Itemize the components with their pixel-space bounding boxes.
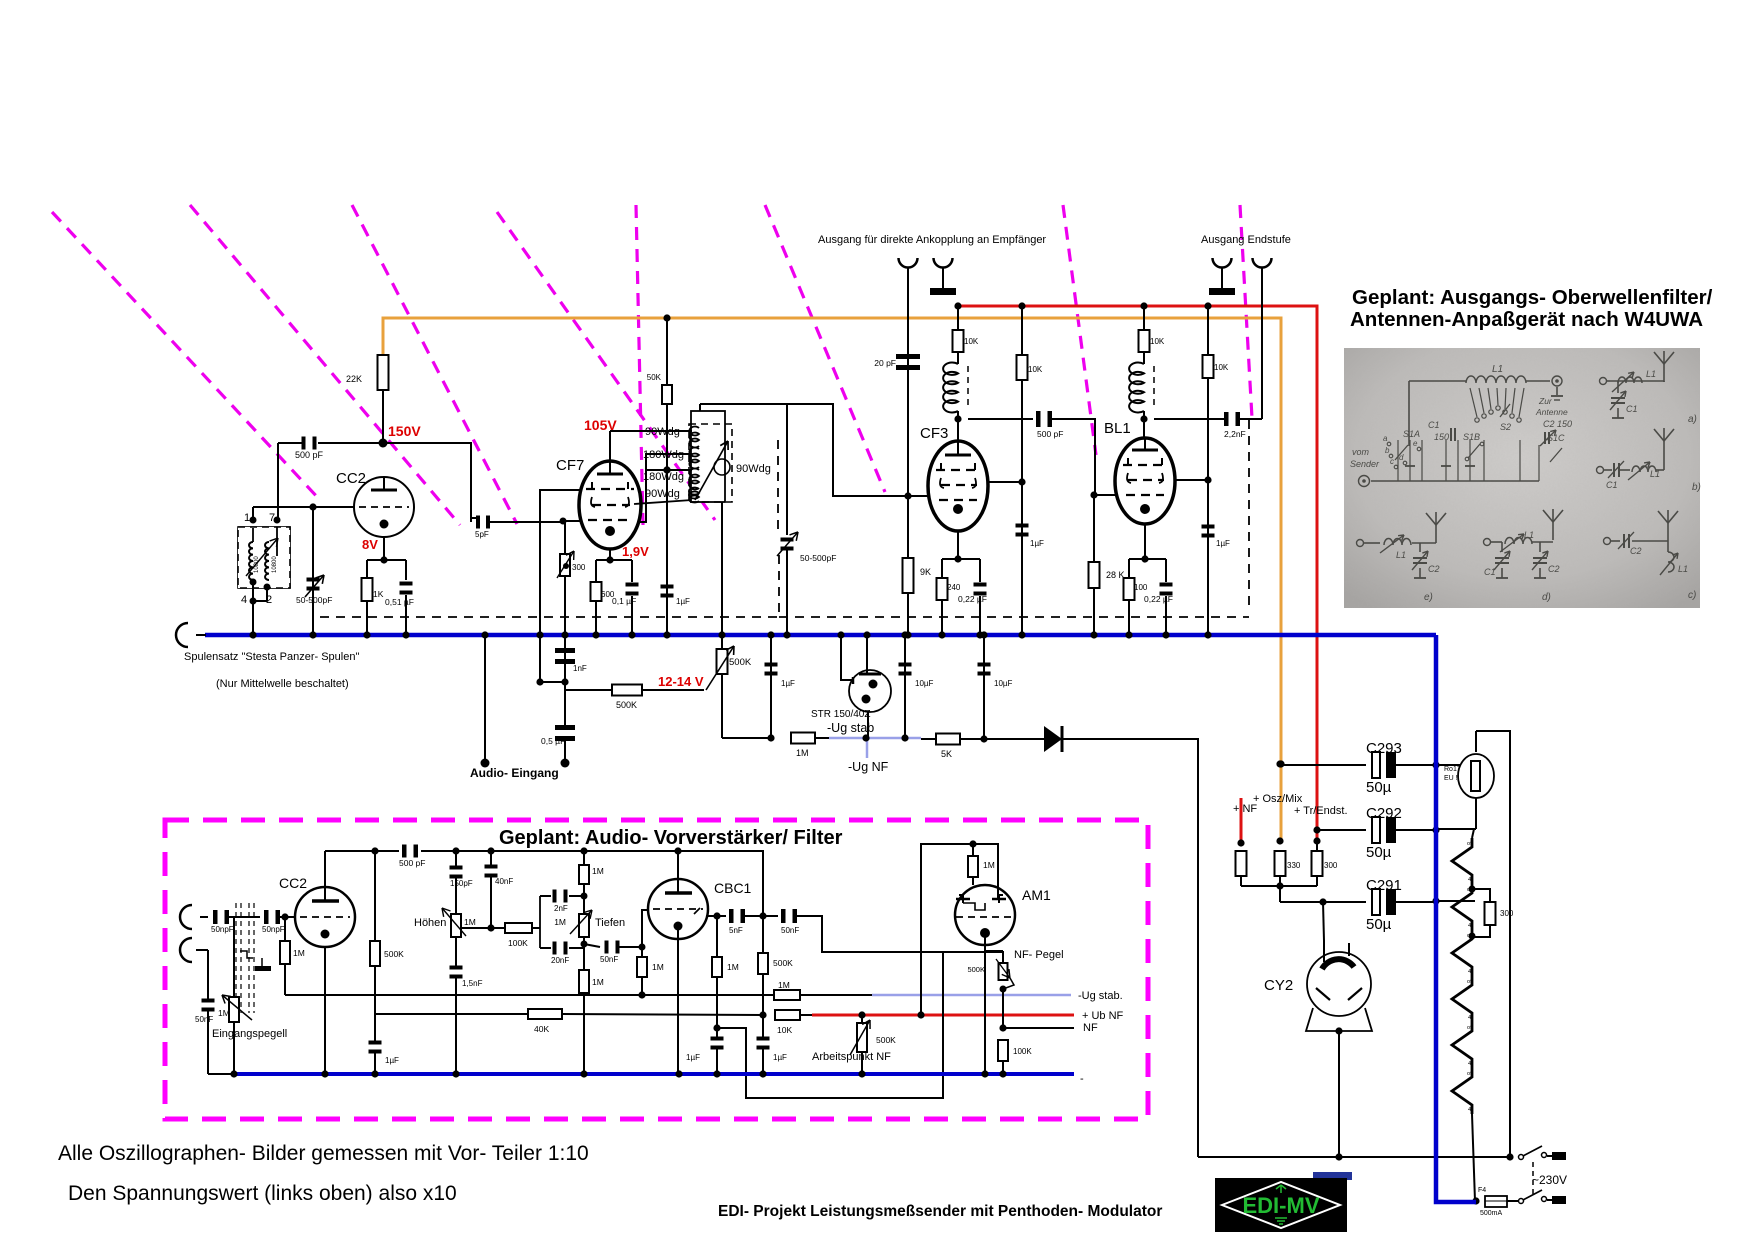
- svg-text:1µF: 1µF: [385, 1056, 399, 1065]
- svg-text:1M: 1M: [592, 977, 604, 987]
- svg-text:C2 150: C2 150: [1543, 419, 1572, 429]
- svg-text:Ausgang für direkte Ankopplung: Ausgang für direkte Ankopplung an Empfän…: [818, 234, 1046, 246]
- svg-text:500mA: 500mA: [1480, 1210, 1503, 1217]
- svg-text:EDI- Projekt Leistungsmeßsende: EDI- Projekt Leistungsmeßsender mit Pent…: [718, 1203, 1162, 1220]
- svg-text:50npF: 50npF: [211, 925, 234, 934]
- svg-text:e: e: [1413, 439, 1418, 448]
- svg-text:100K: 100K: [1013, 1047, 1032, 1056]
- svg-text:CC2: CC2: [279, 875, 307, 891]
- svg-text:4: 4: [1468, 877, 1471, 883]
- svg-text:C291: C291: [1366, 877, 1402, 894]
- svg-text:a: a: [1383, 434, 1388, 443]
- svg-text:b: b: [1385, 446, 1390, 455]
- svg-text:10K: 10K: [1150, 337, 1165, 346]
- svg-text:1K: 1K: [373, 589, 384, 599]
- svg-text:-Ug NF: -Ug NF: [848, 760, 889, 774]
- svg-text:5pF: 5pF: [475, 530, 489, 539]
- svg-text:Spulensatz "Stesta Panzer- Spu: Spulensatz "Stesta Panzer- Spulen": [184, 651, 359, 663]
- svg-text:0,22 µF: 0,22 µF: [958, 594, 987, 604]
- svg-text:of: of: [1467, 1071, 1472, 1077]
- svg-text:50-500pF: 50-500pF: [800, 553, 836, 563]
- svg-text:180Wdg: 180Wdg: [643, 471, 684, 483]
- svg-text:L1: L1: [1678, 564, 1688, 574]
- svg-text:C1: C1: [1626, 404, 1638, 414]
- svg-text:C1: C1: [1428, 420, 1440, 430]
- svg-text:90Wdg: 90Wdg: [736, 463, 771, 475]
- svg-text:1µF: 1µF: [686, 1053, 700, 1062]
- svg-text:Geplant: Ausgangs- Oberwellenf: Geplant: Ausgangs- Oberwellenfilter/: [1352, 286, 1713, 309]
- svg-text:500 pF: 500 pF: [295, 450, 324, 460]
- svg-text:NF: NF: [1083, 1022, 1098, 1034]
- svg-text:Eingangspegell: Eingangspegell: [212, 1028, 287, 1040]
- svg-text:4: 4: [1468, 1107, 1471, 1113]
- svg-text:a): a): [1688, 414, 1697, 425]
- svg-text:500K: 500K: [729, 657, 752, 668]
- svg-text:C2: C2: [1428, 564, 1440, 574]
- svg-text:10800: 10800: [272, 556, 278, 573]
- svg-text:1M: 1M: [796, 748, 809, 758]
- svg-text:CBC1: CBC1: [714, 880, 752, 896]
- svg-text:1M: 1M: [727, 962, 739, 972]
- svg-text:C1: C1: [1606, 480, 1618, 490]
- svg-text:50µ: 50µ: [1366, 779, 1392, 796]
- svg-text:150: 150: [1434, 432, 1449, 442]
- svg-text:1M: 1M: [592, 866, 604, 876]
- svg-text:1µF: 1µF: [773, 1053, 787, 1062]
- svg-text:C293: C293: [1366, 740, 1402, 757]
- svg-text:500 pF: 500 pF: [399, 858, 425, 868]
- svg-text:Ausgang Endstufe: Ausgang Endstufe: [1201, 234, 1291, 246]
- svg-text:Geplant: Audio- Vorverstärker/: Geplant: Audio- Vorverstärker/ Filter: [499, 827, 843, 849]
- svg-text:50K: 50K: [647, 373, 662, 382]
- svg-text:C2: C2: [1630, 546, 1642, 556]
- svg-text:S2: S2: [1500, 422, 1511, 432]
- svg-text:F4: F4: [1478, 1187, 1486, 1194]
- svg-text:of: of: [1467, 841, 1472, 847]
- svg-text:L1: L1: [1524, 530, 1534, 540]
- svg-text:+ Tr/Endst.: + Tr/Endst.: [1294, 805, 1348, 817]
- svg-text:4: 4: [1468, 923, 1471, 929]
- svg-text:2nF: 2nF: [554, 904, 568, 913]
- svg-text:L1: L1: [1646, 369, 1656, 379]
- svg-text:S1C: S1C: [1547, 433, 1565, 443]
- svg-text:10K: 10K: [1214, 363, 1229, 372]
- svg-text:e): e): [1424, 592, 1433, 603]
- svg-text:0,5 µF: 0,5 µF: [541, 736, 565, 746]
- svg-text:330: 330: [1287, 861, 1301, 870]
- svg-text:1,9V: 1,9V: [622, 544, 649, 559]
- svg-text:C1: C1: [1484, 567, 1496, 577]
- svg-text:4: 4: [1468, 1061, 1471, 1067]
- svg-text:NF- Pegel: NF- Pegel: [1014, 949, 1064, 961]
- svg-text:40nF: 40nF: [495, 877, 513, 886]
- svg-text:10K: 10K: [1028, 365, 1043, 374]
- svg-text:d): d): [1542, 592, 1551, 603]
- svg-text:4: 4: [241, 594, 247, 606]
- svg-text:Audio- Eingang: Audio- Eingang: [470, 766, 559, 780]
- svg-text:BL1: BL1: [1104, 420, 1131, 437]
- svg-text:500K: 500K: [773, 958, 793, 968]
- svg-text:10K: 10K: [964, 337, 979, 346]
- svg-text:1M: 1M: [983, 860, 995, 870]
- svg-text:50µ: 50µ: [1366, 844, 1392, 861]
- svg-text:C292: C292: [1366, 805, 1402, 822]
- svg-text:10K: 10K: [777, 1025, 792, 1035]
- svg-text:2,2nF: 2,2nF: [1224, 429, 1246, 439]
- svg-text:+ Osz/Mix: + Osz/Mix: [1253, 793, 1303, 805]
- svg-text:Ro17: Ro17: [1444, 766, 1461, 773]
- svg-text:5K: 5K: [941, 749, 952, 759]
- svg-text:50nF: 50nF: [195, 1015, 213, 1024]
- svg-text:1,5nF: 1,5nF: [462, 979, 483, 988]
- svg-text:90Wdg: 90Wdg: [645, 488, 680, 500]
- svg-text:90Wdg: 90Wdg: [645, 426, 680, 438]
- svg-text:9K: 9K: [920, 567, 931, 577]
- svg-text:1M: 1M: [293, 948, 305, 958]
- svg-text:240: 240: [947, 583, 961, 592]
- svg-text:-Ug stab.: -Ug stab.: [1078, 990, 1123, 1002]
- svg-text:500K: 500K: [967, 965, 985, 974]
- svg-text:Antennen-Anpaßgerät nach W4UWA: Antennen-Anpaßgerät nach W4UWA: [1350, 308, 1703, 331]
- svg-text:500K: 500K: [384, 949, 404, 959]
- svg-text:c: c: [1390, 457, 1394, 466]
- svg-text:500K: 500K: [616, 700, 637, 710]
- svg-text:4: 4: [1468, 1015, 1471, 1021]
- svg-text:of: of: [1467, 1025, 1472, 1031]
- svg-text:1µF: 1µF: [676, 597, 690, 606]
- svg-text:-: -: [1080, 1073, 1084, 1085]
- svg-text:EDI-MV: EDI-MV: [1243, 1193, 1320, 1218]
- svg-text:CF7: CF7: [556, 457, 584, 474]
- svg-text:50µ: 50µ: [1366, 916, 1392, 933]
- svg-text:50npF: 50npF: [262, 925, 285, 934]
- svg-text:1: 1: [244, 512, 250, 524]
- svg-text:150V: 150V: [388, 423, 421, 439]
- svg-text:50nF: 50nF: [781, 926, 799, 935]
- svg-text:S1B: S1B: [1463, 432, 1480, 442]
- svg-text:(Nur Mittelwelle beschaltet): (Nur Mittelwelle beschaltet): [216, 678, 349, 690]
- svg-text:1M: 1M: [652, 962, 664, 972]
- svg-text:AM1: AM1: [1022, 887, 1051, 903]
- svg-text:L1: L1: [1396, 550, 1406, 560]
- svg-text:50nF: 50nF: [600, 955, 618, 964]
- svg-text:180Wdg: 180Wdg: [643, 449, 684, 461]
- svg-text:Arbeitspunkt NF: Arbeitspunkt NF: [812, 1051, 891, 1063]
- svg-text:vom: vom: [1352, 447, 1370, 457]
- svg-text:300: 300: [1500, 909, 1514, 918]
- svg-text:10µF: 10µF: [915, 679, 934, 688]
- svg-text:10800: 10800: [254, 556, 260, 573]
- svg-text:1µF: 1µF: [781, 679, 795, 688]
- svg-text:4: 4: [1468, 969, 1471, 975]
- svg-text:40K: 40K: [534, 1024, 549, 1034]
- svg-text:28 K: 28 K: [1106, 570, 1125, 580]
- svg-text:of: of: [1467, 979, 1472, 985]
- svg-text:b): b): [1692, 482, 1701, 493]
- svg-text:c): c): [1688, 590, 1696, 601]
- svg-text:1µF: 1µF: [1030, 539, 1044, 548]
- svg-text:10µF: 10µF: [994, 679, 1013, 688]
- svg-text:CC2: CC2: [336, 470, 366, 487]
- svg-text:150pF: 150pF: [450, 879, 473, 888]
- svg-text:Den Spannungswert (links oben): Den Spannungswert (links oben) also x10: [68, 1182, 457, 1205]
- svg-text:8V: 8V: [362, 537, 378, 552]
- svg-text:20nF: 20nF: [551, 956, 569, 965]
- svg-text:500 pF: 500 pF: [1037, 429, 1063, 439]
- svg-text:CF3: CF3: [920, 425, 948, 442]
- svg-text:L1: L1: [1492, 364, 1503, 375]
- svg-text:C2: C2: [1548, 564, 1560, 574]
- svg-text:1nF: 1nF: [573, 664, 587, 673]
- svg-text:CY2: CY2: [1264, 977, 1293, 994]
- svg-text:1M: 1M: [218, 1008, 230, 1018]
- svg-text:500K: 500K: [876, 1035, 896, 1045]
- svg-text:Zur: Zur: [1538, 396, 1553, 406]
- svg-text:22K: 22K: [346, 374, 362, 384]
- svg-text:1M: 1M: [464, 917, 476, 927]
- svg-text:Höhen: Höhen: [414, 917, 446, 929]
- svg-text:1M: 1M: [778, 980, 790, 990]
- svg-text:1M: 1M: [554, 917, 566, 927]
- svg-text:5nF: 5nF: [729, 926, 743, 935]
- svg-text:Alle Oszillographen- Bilder ge: Alle Oszillographen- Bilder gemessen mit…: [58, 1142, 589, 1165]
- svg-text:-Ug stab: -Ug stab: [827, 721, 874, 735]
- svg-text:100: 100: [1134, 583, 1148, 592]
- svg-text:Tiefen: Tiefen: [595, 917, 625, 929]
- svg-text:~230V: ~230V: [1532, 1173, 1567, 1187]
- svg-text:EU !!: EU !!: [1444, 775, 1460, 782]
- svg-text:Antenne: Antenne: [1535, 407, 1568, 417]
- svg-text:S1A: S1A: [1403, 429, 1420, 439]
- svg-text:100K: 100K: [508, 938, 528, 948]
- svg-text:0,22 µF: 0,22 µF: [1144, 594, 1173, 604]
- svg-text:1µF: 1µF: [1216, 539, 1230, 548]
- svg-text:STR 150/40Z: STR 150/40Z: [811, 709, 870, 720]
- svg-text:300: 300: [1324, 861, 1338, 870]
- svg-text:0,51 µF: 0,51 µF: [385, 597, 414, 607]
- svg-text:50-500pF: 50-500pF: [296, 595, 332, 605]
- svg-text:12-14 V: 12-14 V: [658, 674, 704, 689]
- svg-text:300: 300: [572, 563, 586, 572]
- svg-text:Sender: Sender: [1350, 459, 1380, 469]
- svg-text:+ Ub NF: + Ub NF: [1082, 1010, 1124, 1022]
- svg-text:20 pF: 20 pF: [874, 358, 896, 368]
